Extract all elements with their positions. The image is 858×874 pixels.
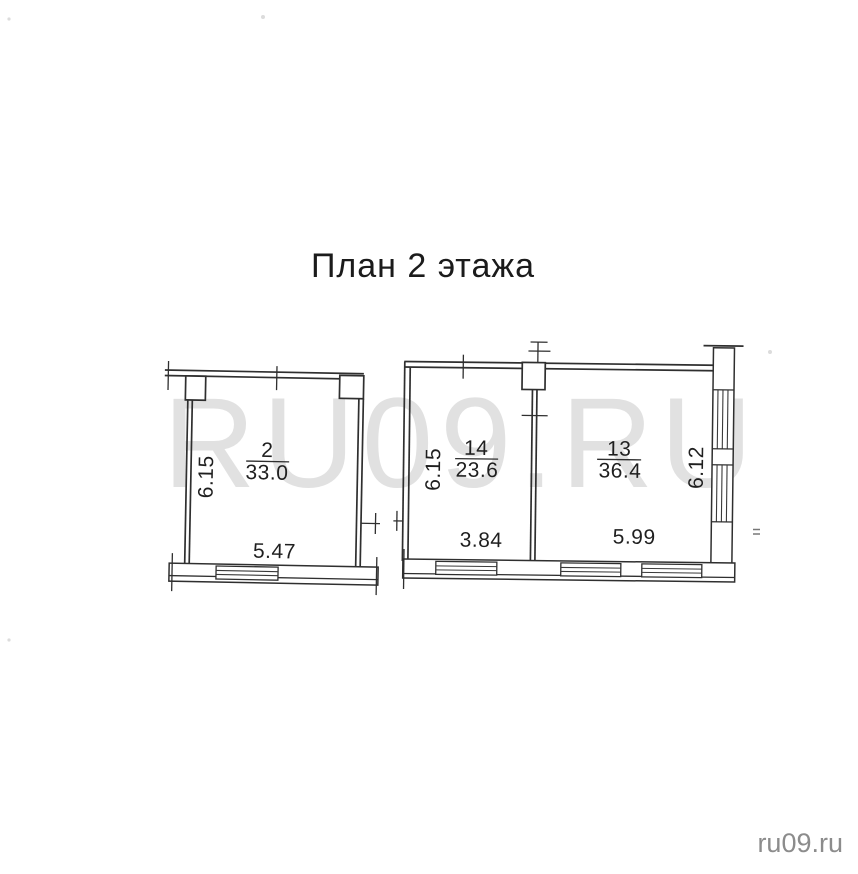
equals-artifact xyxy=(753,530,760,535)
watermark-center-text: RU09.RU xyxy=(163,372,760,515)
room-2-number-label: 2 xyxy=(261,439,274,462)
scanned-floor-plan-page: RU09.RU План 2 этажа xyxy=(0,0,858,874)
right-building-bottom-wall xyxy=(403,549,735,593)
room-13-width-dimension: 5.99 xyxy=(613,526,656,550)
room-2-height-dimension: 6.15 xyxy=(194,455,218,498)
room-13-bottom-window-left xyxy=(561,563,621,577)
room-13-area-label: 36.4 xyxy=(598,459,641,483)
room-2-pier-top-left xyxy=(185,376,205,400)
room-2-window xyxy=(216,566,278,580)
top-middle-pier-tick xyxy=(528,341,550,362)
room-2-width-dimension: 5.47 xyxy=(253,540,296,564)
room-14-area-label: 23.6 xyxy=(455,459,498,483)
room-14-height-dimension: 6.15 xyxy=(422,448,446,491)
room-13-bottom-window-right xyxy=(642,564,702,578)
room-2-area-label: 33.0 xyxy=(245,461,288,485)
room-2-pier-top-right xyxy=(339,375,363,398)
room-14-bottom-window xyxy=(436,561,497,575)
room-13-height-dimension: 6.12 xyxy=(685,446,709,489)
room-14-number-label: 14 xyxy=(464,437,489,460)
scan-specks xyxy=(7,15,772,642)
top-middle-pier xyxy=(522,362,545,389)
room-13-number-label: 13 xyxy=(607,437,632,460)
watermark-corner-text: ru09.ru xyxy=(757,828,843,858)
room-14-width-dimension: 3.84 xyxy=(460,529,503,553)
plan-title: План 2 этажа xyxy=(311,247,535,285)
